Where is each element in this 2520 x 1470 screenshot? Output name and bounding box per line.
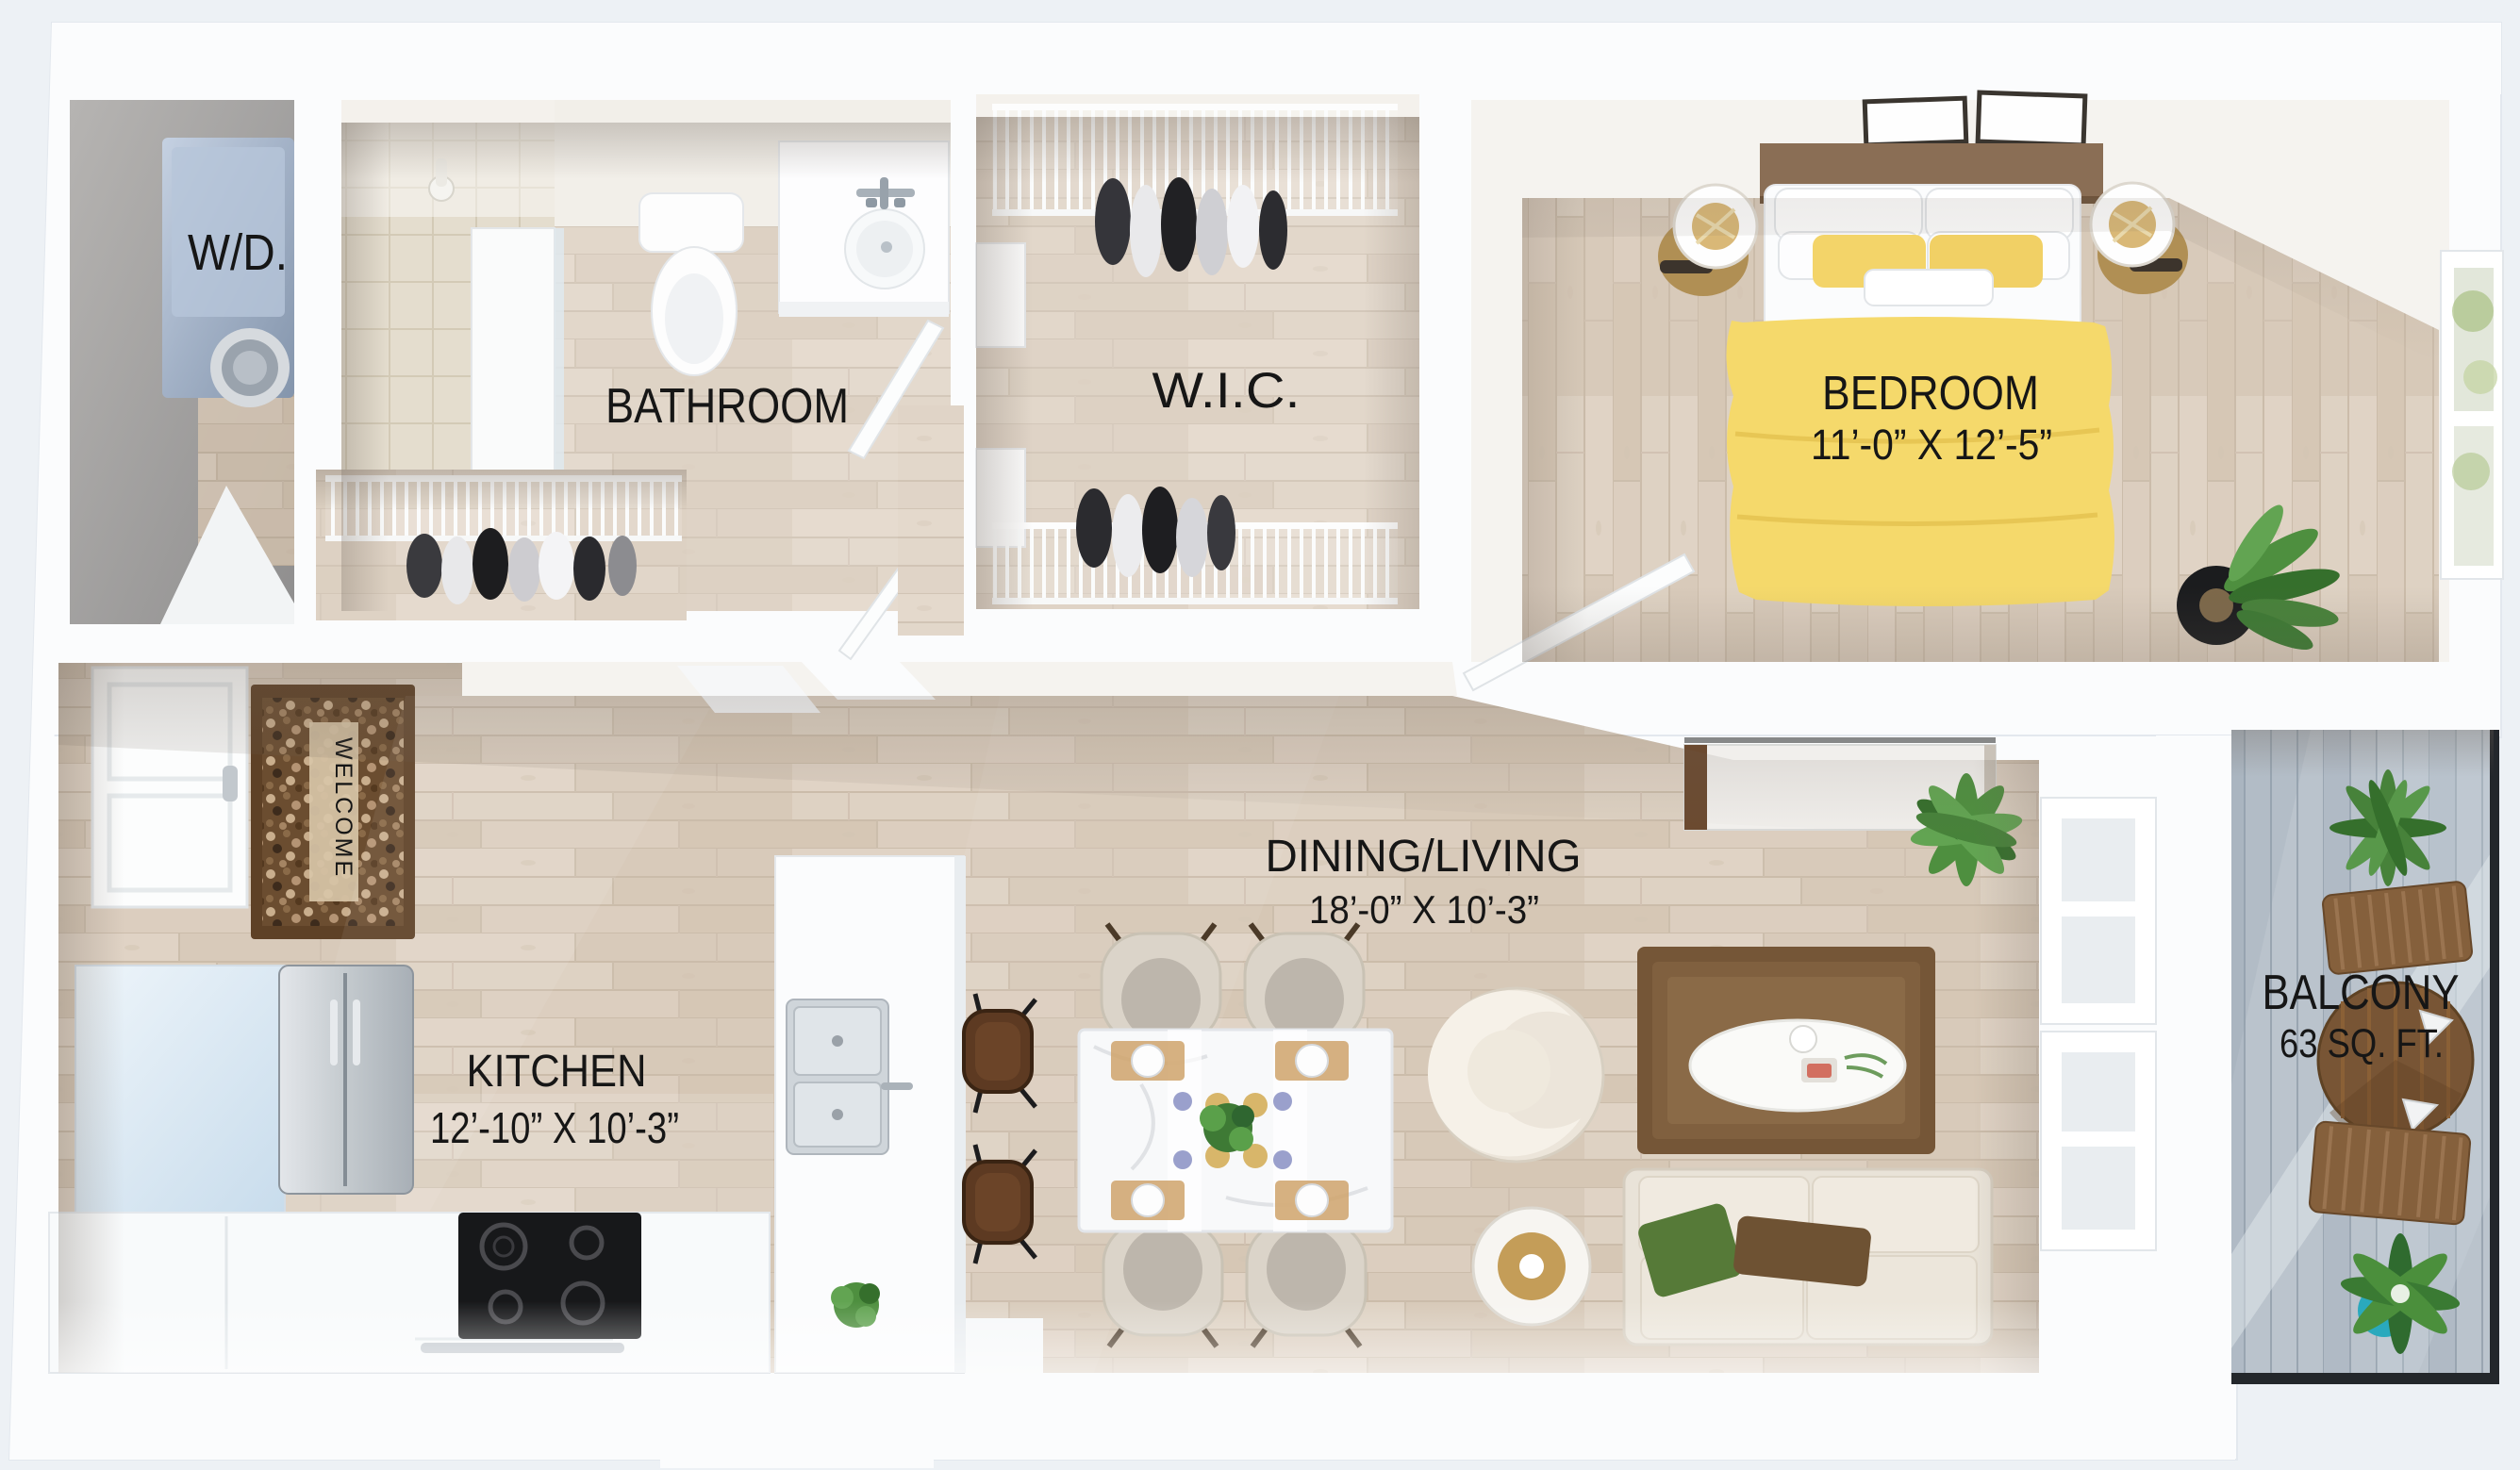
svg-text:63 SQ. FT.: 63 SQ. FT. bbox=[2280, 1021, 2444, 1066]
svg-text:BALCONY: BALCONY bbox=[2263, 966, 2460, 1020]
svg-text:BEDROOM: BEDROOM bbox=[1822, 366, 2039, 420]
svg-text:11’-0” X 12’-5”: 11’-0” X 12’-5” bbox=[1811, 421, 2052, 469]
svg-text:18’-0” X 10’-3”: 18’-0” X 10’-3” bbox=[1309, 887, 1539, 932]
svg-text:BATHROOM: BATHROOM bbox=[605, 379, 849, 434]
svg-text:DINING/LIVING: DINING/LIVING bbox=[1266, 832, 1582, 882]
svg-text:W.I.C.: W.I.C. bbox=[1152, 363, 1301, 419]
svg-text:KITCHEN: KITCHEN bbox=[467, 1047, 647, 1097]
svg-text:W/D.: W/D. bbox=[188, 224, 288, 281]
svg-text:12’-10” X 10’-3”: 12’-10” X 10’-3” bbox=[430, 1103, 679, 1152]
